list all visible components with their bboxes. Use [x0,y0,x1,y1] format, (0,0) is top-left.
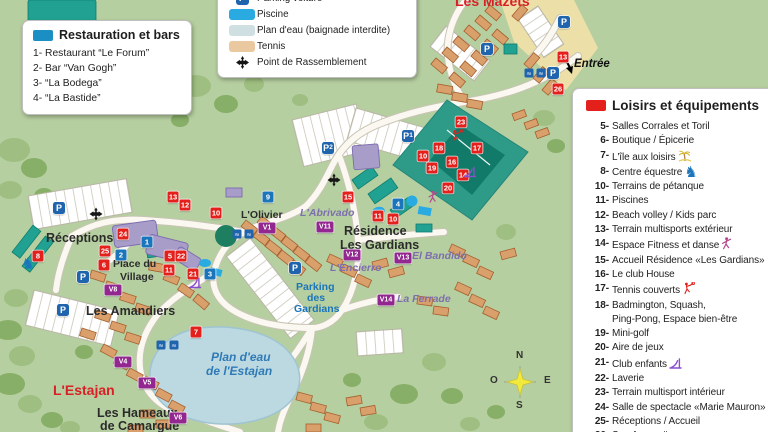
map-marker-V5: V5 [139,378,156,389]
map-marker-7: 7 [191,327,202,338]
legend-loisirs-title-row: Loisirs et équipements [586,98,768,113]
assembly-point-icon [236,56,249,69]
legend-item-number: 5- [586,120,609,134]
map-marker-18: 18 [434,143,445,154]
bico-map-icon: ≈ [525,69,534,78]
bico-map-icon: ≈ [233,230,242,239]
legend-loisirs-item: 14-Espace Fitness et danse [586,237,768,253]
map-marker-V6: V6 [170,413,187,424]
amenity-icon: ≈ [157,341,166,350]
legend-loisirs-item: 25-Réceptions / Accueil [586,415,768,429]
map-marker-10: 10 [388,214,399,225]
map-marker-13: 13 [168,192,179,203]
horse-map-icon: ♞ [21,257,34,272]
map-marker-V13: V13 [395,253,412,264]
map-marker-20: 20 [443,183,454,194]
legend-loisirs-item: 8-Centre équestre♞ [586,165,768,180]
map-marker-10: 10 [211,208,222,219]
legend-item-number [586,313,609,327]
legend-general-label: Plan d'eau (baignade interdite) [257,25,390,36]
horse-icon: ♞ [21,255,34,273]
legend-item-label: Laverie [612,372,644,386]
resort-map: Les MazetsEntréeRéceptionsPlace duVillag… [0,0,768,432]
legend-item-number: 22- [586,372,609,386]
map-marker-11: 11 [373,211,384,222]
bico-map-icon: ≈ [170,341,179,350]
dancer-icon [721,237,732,250]
legend-loisirs-title: Loisirs et équipements [612,98,759,113]
legend-item-number: 11- [586,194,609,208]
legend-item-label: Le club House [612,268,675,282]
legend-loisirs-item: 11-Piscines [586,194,768,208]
legend-loisirs-item: 15-Accueil Résidence «Les Gardians» [586,254,768,268]
pool-swatch-icon [229,9,255,20]
legend-restauration-item: 3- “La Bodega” [33,76,181,91]
tennis-swatch-icon [229,41,255,52]
legend-loisirs-item: 17-Tennis couverts [586,282,768,298]
map-marker-16: 16 [447,157,458,168]
legend-item-number: 13- [586,223,609,237]
legend-item-number: 16- [586,268,609,282]
legend-loisirs-item: 7-L'île aux loisirs [586,149,768,165]
legend-item-number: 12- [586,209,609,223]
amenity-icon: ≈ [233,230,242,239]
legend-restauration-items: 1- Restaurant “Le Forum”2- Bar “Van Gogh… [33,46,181,106]
legend-item-number: 8- [586,165,609,180]
legend-item-number: 19- [586,327,609,341]
map-marker-5: 5 [165,251,176,262]
assembly-point-icon [328,174,341,187]
map-marker-22: 22 [176,251,187,262]
legend-loisirs-item: 13-Terrain multisports extérieur [586,223,768,237]
map-marker-6: 6 [99,260,110,271]
legend-item-label: L'île aux loisirs [612,149,692,165]
legend-restauration-title: Restauration et bars [59,28,180,42]
map-marker-V8: V8 [105,285,122,296]
legend-general-row: Piscine [227,6,407,22]
restauration-swatch-icon [33,30,53,41]
map-marker-17: 17 [472,143,483,154]
legend-loisirs-item: 16-Le club House [586,268,768,282]
legend-item-label: Terrain multisport intérieur [612,386,725,400]
map-marker-11: 11 [164,265,175,276]
map-marker-9: 9 [263,192,274,203]
map-marker-2: 2 [116,250,127,261]
legend-item-label: Badmington, Squash, [612,299,706,313]
map-marker-P: P [547,67,559,79]
map-marker-P: P [57,304,69,316]
legend-restauration-item: 2- Bar “Van Gogh” [33,61,181,76]
legend-item-label: Mini-golf [612,327,649,341]
map-marker-24: 24 [118,229,129,240]
legend-item-label: Beach volley / Kids parc [612,209,716,223]
map-marker-19: 19 [427,163,438,174]
map-marker-V11: V11 [317,222,334,233]
legend-item-number: 23- [586,386,609,400]
legend-general-row: Point de Rassemblement [227,54,407,70]
legend-item-number: 10- [586,180,609,194]
dancer-map-icon [428,191,439,204]
bico-map-icon: ≈ [245,230,254,239]
loisirs-swatch-icon [586,100,606,111]
legend-item-number: 6- [586,134,609,148]
legend-item-label: Boutique / Épicerie [612,134,694,148]
map-marker-P: P [53,202,65,214]
legend-item-label: Tennis couverts [612,282,695,298]
horse-icon: ♞ [684,163,697,181]
slide-icon [669,356,682,369]
legend-loisirs-item: 18-Badmington, Squash, [586,299,768,313]
slide-icon [189,276,202,289]
legend-item-number: 7- [586,149,609,165]
map-marker-V14: V14 [378,295,395,306]
map-marker-13: 13 [558,52,569,63]
legend-item-label: Réceptions / Accueil [612,415,700,429]
slide-icon [464,165,477,178]
assembly-point-icon [90,208,103,221]
legend-loisirs-item: 24-Salle de spectacle «Marie Mauron» [586,401,768,415]
legend-item-number: 18- [586,299,609,313]
legend-item-label: Aire de jeux [612,341,664,355]
legend-general-items: PParking voiturePiscinePlan d'eau (baign… [227,0,407,70]
legend-loisirs-item: 23-Terrain multisport intérieur [586,386,768,400]
legend-loisirs: Loisirs et équipements 5-Salles Corrales… [572,88,768,432]
map-marker-25: 25 [100,246,111,257]
map-marker-3: 3 [205,269,216,280]
map-marker-12: 12 [180,200,191,211]
legend-item-label: Centre équestre♞ [612,165,698,180]
tennis-map-icon [451,130,464,143]
legend-loisirs-item: 5-Salles Corrales et Toril [586,120,768,134]
legend-loisirs-item: Ping-Pong, Espace bien-être [586,313,768,327]
legend-general: PParking voiturePiscinePlan d'eau (baign… [217,0,417,78]
legend-item-number: 25- [586,415,609,429]
parking-icon: P [236,0,249,5]
bico-map-icon: ≈ [537,69,546,78]
map-marker-26: 26 [553,84,564,95]
map-marker-P: P [481,43,493,55]
legend-general-label: Tennis [257,41,285,52]
map-marker-10: 10 [418,151,429,162]
map-marker-P2: P2 [322,142,334,154]
dancer-icon [428,191,439,204]
legend-general-row: Tennis [227,38,407,54]
legend-restauration-item: 4- “La Bastide” [33,91,181,106]
amenity-icon: ≈ [170,341,179,350]
water-swatch-icon [229,25,255,36]
legend-restauration-title-row: Restauration et bars [33,28,181,42]
legend-item-label: Accueil Résidence «Les Gardians» [612,254,764,268]
legend-item-label: Salles Corrales et Toril [612,120,709,134]
legend-loisirs-item: 6-Boutique / Épicerie [586,134,768,148]
legend-item-number: 21- [586,356,609,372]
legend-general-label: Point de Rassemblement [257,57,366,68]
map-marker-P: P [558,16,570,28]
bico-map-icon: ≈ [157,341,166,350]
legend-loisirs-item: 20-Aire de jeux [586,341,768,355]
map-marker-V1: V1 [259,223,276,234]
slide-map-icon [464,165,477,178]
island-icon [678,149,692,162]
amenity-icon: ≈ [525,69,534,78]
amenity-icon: ≈ [245,230,254,239]
legend-loisirs-items: 5-Salles Corrales et Toril6-Boutique / É… [586,120,768,432]
legend-general-label: Piscine [257,9,289,20]
map-marker-P: P [289,262,301,274]
cross-map-icon [90,208,103,221]
legend-restauration-item: 1- Restaurant “Le Forum” [33,46,181,61]
legend-item-number: 20- [586,341,609,355]
legend-item-label: Espace Fitness et danse [612,237,732,253]
cross-map-icon [328,174,341,187]
legend-item-number: 15- [586,254,609,268]
legend-loisirs-item: 10-Terrains de pétanque [586,180,768,194]
legend-item-label: Piscines [612,194,648,208]
map-marker-P1: P1 [402,130,414,142]
legend-loisirs-item: 12-Beach volley / Kids parc [586,209,768,223]
legend-item-number: 17- [586,282,609,298]
map-marker-15: 15 [343,192,354,203]
map-marker-23: 23 [456,117,467,128]
legend-item-label: Terrain multisports extérieur [612,223,732,237]
map-marker-1: 1 [142,237,153,248]
legend-loisirs-item: 19-Mini-golf [586,327,768,341]
legend-general-label: Parking voiture [257,0,322,4]
tennis-player-icon [451,130,464,143]
legend-item-number: 14- [586,237,609,253]
map-marker-V12: V12 [344,250,361,261]
map-marker-V4: V4 [115,357,132,368]
tennis-player-icon [682,282,695,295]
legend-general-row: Plan d'eau (baignade interdite) [227,22,407,38]
legend-item-label: Terrains de pétanque [612,180,704,194]
legend-restauration: Restauration et bars 1- Restaurant “Le F… [22,20,192,115]
map-marker-4: 4 [393,199,404,210]
amenity-icon: ≈ [537,69,546,78]
legend-item-number: 24- [586,401,609,415]
legend-item-label: Salle de spectacle «Marie Mauron» [612,401,765,415]
legend-loisirs-item: 21-Club enfants [586,356,768,372]
legend-loisirs-item: 22-Laverie [586,372,768,386]
slide-map-icon [189,276,202,289]
map-marker-P: P [77,271,89,283]
legend-item-label: Ping-Pong, Espace bien-être [612,313,737,327]
legend-item-label: Club enfants [612,356,682,372]
